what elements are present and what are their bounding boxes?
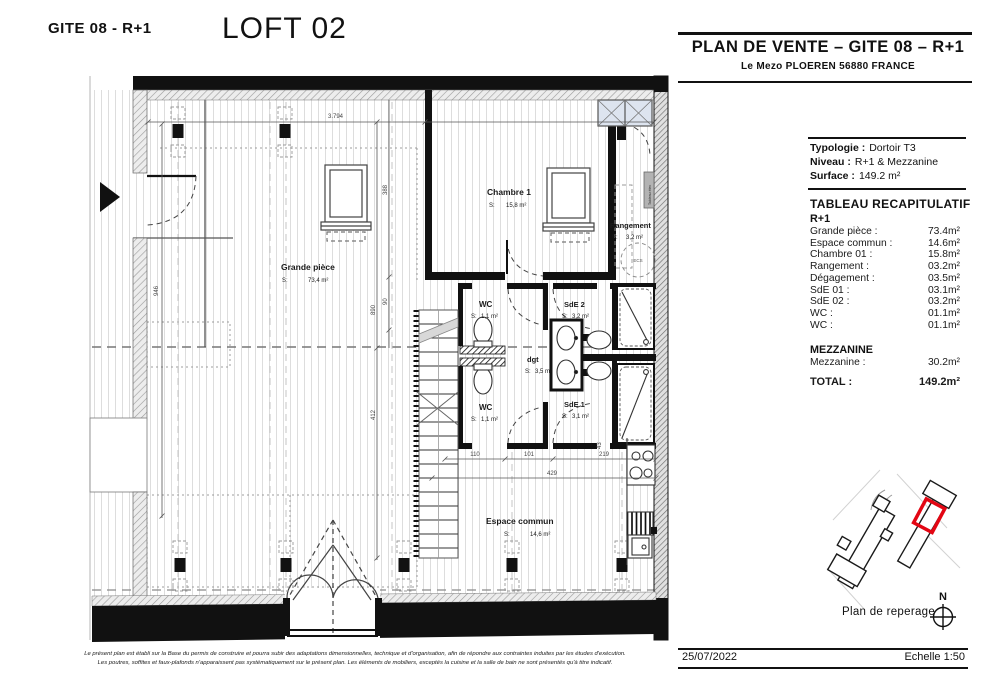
dim-412: 412 bbox=[371, 409, 377, 420]
plan-date: 25/07/2022 bbox=[682, 651, 737, 663]
footer-rule-bottom bbox=[678, 667, 968, 669]
svg-text:S:: S: bbox=[489, 203, 495, 209]
svg-text:3,5 m²: 3,5 m² bbox=[535, 369, 552, 375]
svg-text:3,1 m²: 3,1 m² bbox=[572, 414, 589, 420]
table-row: Dégagement :03.5m² bbox=[810, 273, 960, 285]
svg-text:S:: S: bbox=[562, 414, 568, 420]
svg-text:73,4 m²: 73,4 m² bbox=[308, 278, 328, 284]
electrical-panel-label: Tableau élec bbox=[648, 185, 652, 205]
svg-text:S:: S: bbox=[471, 314, 477, 320]
plan-scale: Echelle 1:50 bbox=[904, 651, 965, 663]
section-r1: R+1 bbox=[810, 213, 830, 225]
dim-101: 101 bbox=[524, 452, 535, 458]
table-row: Espace commun :14.6m² bbox=[810, 238, 960, 250]
total-row: TOTAL : 149.2m² bbox=[810, 377, 960, 389]
ecs-label: ECS bbox=[633, 258, 642, 263]
info-rule-top bbox=[808, 137, 966, 139]
svg-text:S:: S: bbox=[525, 369, 531, 375]
map-buildings bbox=[825, 480, 956, 592]
table-row: WC :01.1m² bbox=[810, 320, 960, 332]
svg-text:dgt: dgt bbox=[527, 355, 539, 364]
floor-plan-drawing: ECS Tableau élec 3.794 946 388 890 90 41… bbox=[0, 0, 680, 683]
table-title: TABLEAU RECAPITULATIF bbox=[810, 197, 971, 211]
table-row: Grande pièce :73.4m² bbox=[810, 226, 960, 238]
svg-text:WC: WC bbox=[479, 403, 493, 412]
svg-text:S:: S: bbox=[282, 278, 288, 284]
dim-90: 90 bbox=[383, 298, 389, 305]
dim-left: 946 bbox=[154, 285, 160, 296]
svg-text:15,8 m²: 15,8 m² bbox=[506, 203, 526, 209]
dim-219: 219 bbox=[599, 452, 610, 458]
table-row: SdE 01 :03.1m² bbox=[810, 285, 960, 297]
dim-43: 43 bbox=[597, 442, 603, 449]
toilet-icon bbox=[474, 317, 492, 343]
dim-890: 890 bbox=[371, 304, 377, 315]
svg-text:WC: WC bbox=[479, 300, 493, 309]
header-rule-bottom bbox=[678, 81, 972, 83]
mezzanine-row: Mezzanine : 30.2m² bbox=[810, 357, 960, 369]
svg-text:S:: S: bbox=[504, 532, 510, 538]
table-row: WC :01.1m² bbox=[810, 308, 960, 320]
plan-de-vente-sheet: GITE 08 - R+1 LOFT 02 bbox=[0, 0, 987, 683]
disclaimer-line-1: Le présent plan est établi sur la Base d… bbox=[48, 650, 662, 659]
svg-text:1,1 m²: 1,1 m² bbox=[481, 417, 498, 423]
info-rule-bottom bbox=[808, 188, 966, 190]
shower-icon bbox=[617, 286, 654, 349]
info-niveau: Niveau : R+1 & Mezzanine bbox=[810, 156, 960, 170]
stove-icon bbox=[627, 445, 655, 485]
svg-text:14,6 m²: 14,6 m² bbox=[530, 532, 550, 538]
staircase bbox=[416, 310, 458, 558]
title-block-panel: PLAN DE VENTE – GITE 08 – R+1 Le Mezo PL… bbox=[672, 0, 987, 683]
legal-disclaimer: Le présent plan est établi sur la Base d… bbox=[48, 650, 662, 668]
svg-text:S:: S: bbox=[471, 417, 477, 423]
svg-text:3,2 m²: 3,2 m² bbox=[572, 314, 589, 320]
svg-text:Espace commun: Espace commun bbox=[486, 516, 554, 526]
footer-rule-top bbox=[678, 648, 968, 650]
washbasin-icon bbox=[587, 331, 611, 349]
table-row: Chambre 01 :15.8m² bbox=[810, 249, 960, 261]
dim-388: 388 bbox=[383, 184, 389, 195]
dim-110: 110 bbox=[470, 452, 480, 458]
toilet-icon bbox=[474, 368, 492, 394]
dishwasher-icon bbox=[627, 512, 653, 535]
svg-text:S:: S: bbox=[562, 314, 568, 320]
area-table: Grande pièce :73.4m² Espace commun :14.6… bbox=[810, 226, 960, 331]
shower-icon bbox=[617, 364, 654, 443]
info-typologie: Typologie : Dortoir T3 bbox=[810, 142, 960, 156]
washbasin-icon bbox=[587, 362, 611, 380]
svg-text:3,2 m²: 3,2 m² bbox=[626, 235, 643, 241]
map-caption: Plan de reperage bbox=[842, 606, 935, 618]
info-surface: Surface : 149.2 m² bbox=[810, 170, 960, 184]
north-label: N bbox=[939, 591, 947, 603]
unit-info: Typologie : Dortoir T3 Niveau : R+1 & Me… bbox=[810, 142, 960, 183]
svg-text:S:: S: bbox=[612, 235, 618, 241]
table-row: SdE 02 :03.2m² bbox=[810, 296, 960, 308]
header-rule-top bbox=[678, 32, 972, 35]
svg-text:Chambre 1: Chambre 1 bbox=[487, 187, 531, 197]
section-mezzanine: MEZZANINE bbox=[810, 344, 873, 356]
svg-text:Grande pièce: Grande pièce bbox=[281, 262, 335, 272]
svg-text:SdE 1: SdE 1 bbox=[564, 400, 585, 409]
dim-429: 429 bbox=[547, 471, 558, 477]
svg-text:1,1 m²: 1,1 m² bbox=[481, 314, 498, 320]
dim-top: 3.794 bbox=[328, 114, 344, 120]
disclaimer-line-2: Les poutres, soffites et faux-plafonds n… bbox=[48, 659, 662, 668]
svg-text:Rangement: Rangement bbox=[610, 221, 651, 230]
svg-text:SdE 2: SdE 2 bbox=[564, 300, 585, 309]
panel-subtitle: Le Mezo PLOEREN 56880 FRANCE bbox=[678, 61, 978, 72]
left-recess bbox=[90, 418, 147, 492]
panel-title: PLAN DE VENTE – GITE 08 – R+1 bbox=[678, 38, 978, 57]
table-row: Rangement :03.2m² bbox=[810, 261, 960, 273]
